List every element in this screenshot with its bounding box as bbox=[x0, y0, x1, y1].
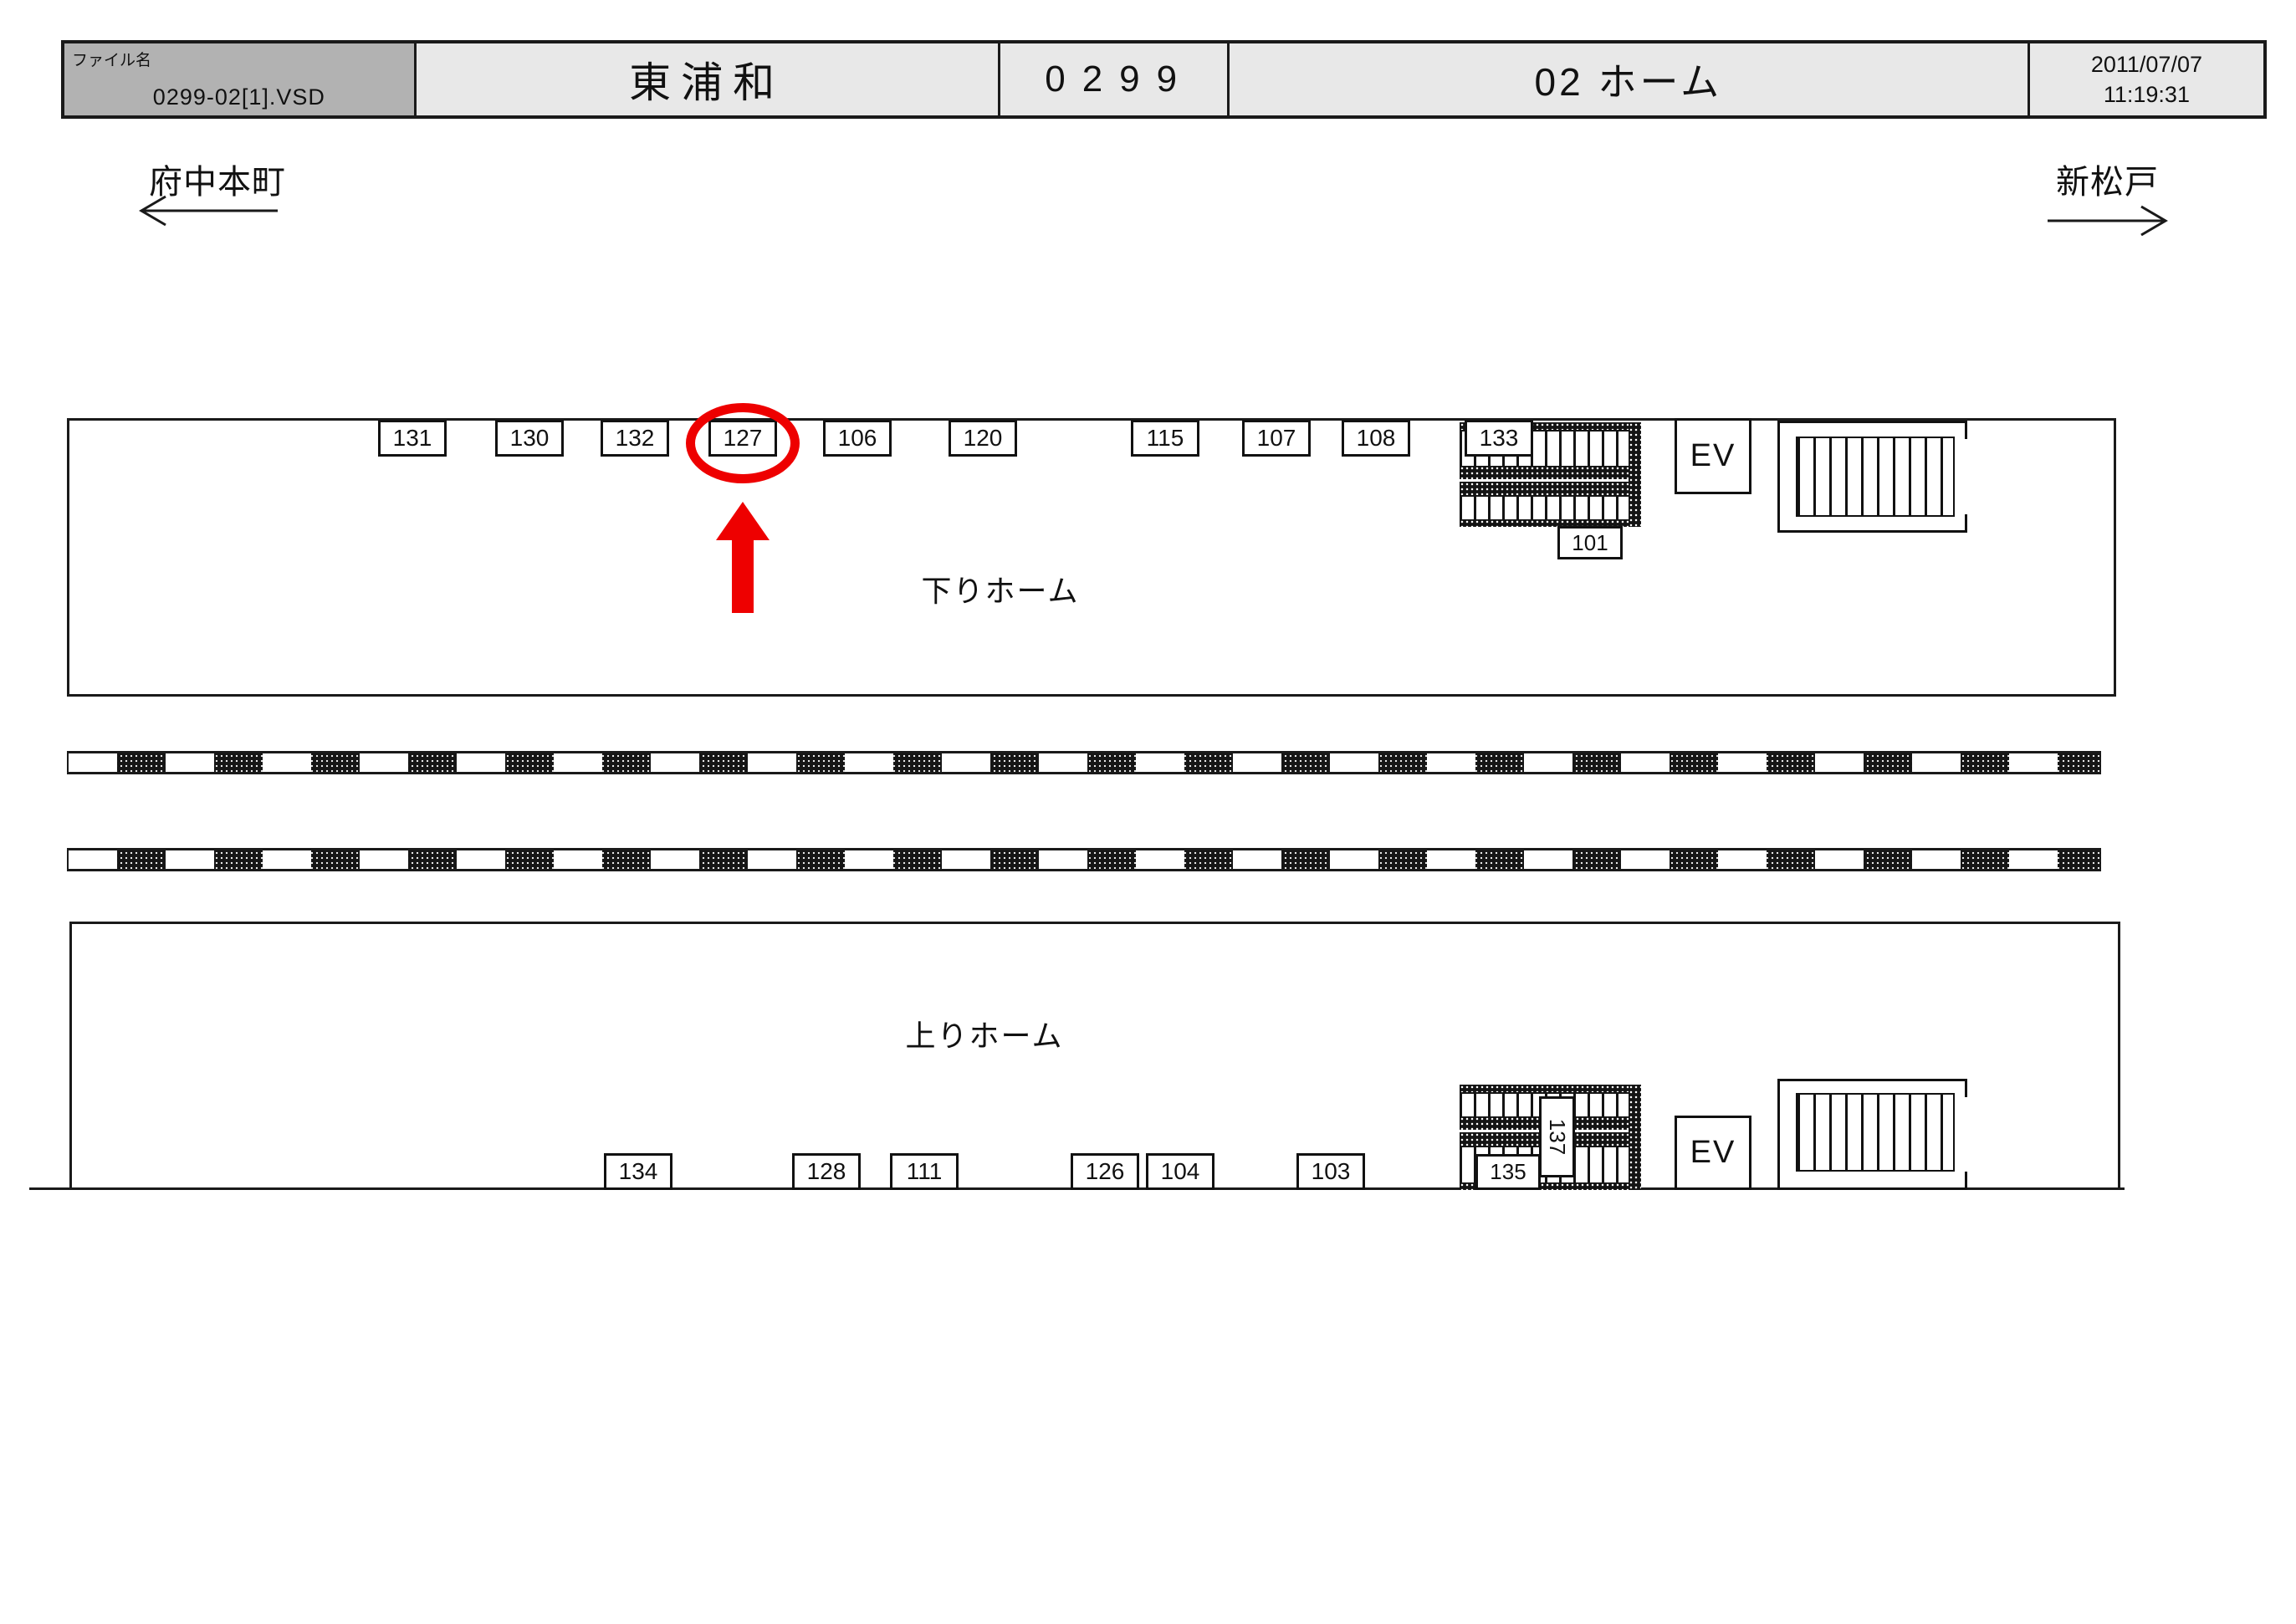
staircase-cap bbox=[1965, 1172, 1967, 1187]
platform-sign-132: 132 bbox=[601, 420, 669, 457]
platform-sign-128: 128 bbox=[792, 1153, 861, 1190]
highlight-up-arrow-icon bbox=[716, 502, 770, 613]
platform-sign-104: 104 bbox=[1146, 1153, 1214, 1190]
hatch-edge bbox=[1629, 422, 1641, 527]
stair-treads bbox=[1460, 495, 1641, 519]
up-staircase bbox=[1777, 1079, 1967, 1190]
station-platform-diagram: ファイル名 0299-02[1].VSD 東浦和 0299 02 ホーム 201… bbox=[0, 0, 2296, 1624]
up-platform-label: 上りホーム bbox=[842, 1012, 1127, 1055]
hatch-edge bbox=[1629, 1085, 1641, 1190]
datetime-cell: 2011/07/07 11:19:31 bbox=[2030, 43, 2263, 115]
platform-sign-133: 133 bbox=[1465, 420, 1533, 457]
station-code: 0299 bbox=[1000, 43, 1230, 115]
track-line-1 bbox=[67, 751, 2101, 774]
staircase-cap bbox=[1965, 1081, 1967, 1097]
file-cell: ファイル名 0299-02[1].VSD bbox=[64, 43, 417, 115]
platform-sign-106: 106 bbox=[823, 420, 892, 457]
file-name: 0299-02[1].VSD bbox=[153, 84, 325, 110]
platform-sign-137: 137 bbox=[1539, 1096, 1575, 1177]
platform-sign-126: 126 bbox=[1071, 1153, 1139, 1190]
highlight-circle bbox=[686, 403, 800, 483]
platform-sign-107: 107 bbox=[1242, 420, 1311, 457]
file-label: ファイル名 bbox=[72, 48, 151, 70]
platform-sign-108: 108 bbox=[1342, 420, 1410, 457]
direction-right-label: 新松戸 bbox=[2056, 155, 2159, 203]
platform-sign-111: 111 bbox=[890, 1153, 959, 1190]
up-elevator-box: EV bbox=[1675, 1116, 1751, 1190]
staircase-cap bbox=[1965, 423, 1967, 439]
staircase-treads bbox=[1796, 1093, 1955, 1172]
title-block: ファイル名 0299-02[1].VSD 東浦和 0299 02 ホーム 201… bbox=[61, 40, 2267, 119]
platform-sign-130: 130 bbox=[495, 420, 564, 457]
platform-sign-135: 135 bbox=[1475, 1154, 1541, 1190]
hatch-band bbox=[1460, 466, 1641, 479]
down-elevator-box: EV bbox=[1675, 418, 1751, 494]
platform-sign-101: 101 bbox=[1557, 526, 1623, 559]
right-arrow-icon bbox=[2046, 201, 2173, 236]
date: 2011/07/07 bbox=[2091, 49, 2202, 79]
platform-sign-115: 115 bbox=[1131, 420, 1199, 457]
platform-sign-134: 134 bbox=[604, 1153, 672, 1190]
hatch-band bbox=[1460, 482, 1641, 495]
time: 11:19:31 bbox=[2104, 79, 2190, 110]
sheet-title: 02 ホーム bbox=[1230, 43, 2030, 115]
staircase-cap bbox=[1965, 514, 1967, 530]
station-name: 東浦和 bbox=[417, 43, 1000, 115]
platform-sign-103: 103 bbox=[1296, 1153, 1365, 1190]
left-arrow-icon bbox=[134, 192, 280, 227]
platform-sign-131: 131 bbox=[378, 420, 447, 457]
staircase-treads bbox=[1796, 437, 1955, 517]
down-staircase bbox=[1777, 421, 1967, 533]
down-platform-label: 下りホーム bbox=[858, 567, 1143, 610]
hatch-strip bbox=[1460, 1085, 1641, 1092]
track-line-2 bbox=[67, 848, 2101, 871]
platform-sign-120: 120 bbox=[949, 420, 1017, 457]
